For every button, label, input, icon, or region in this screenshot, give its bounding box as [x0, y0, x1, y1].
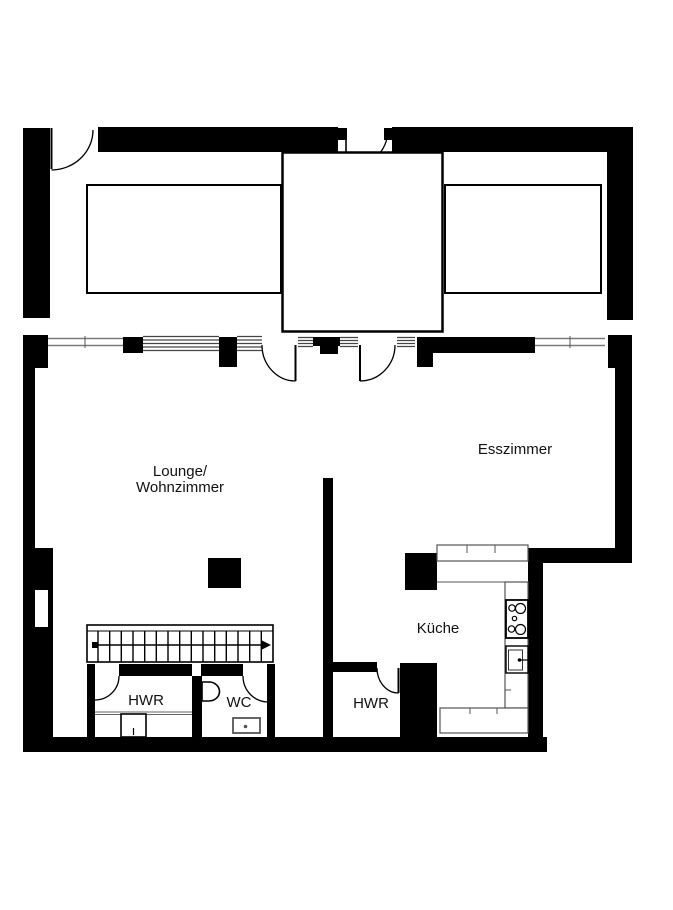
window-hatched-5 — [397, 338, 415, 347]
wall-wc-east — [267, 676, 275, 737]
window-hatched-2 — [237, 337, 262, 351]
label-utility-left: HWR — [128, 693, 164, 709]
wall-kitchen-east — [528, 563, 543, 752]
terrace-left-outline — [87, 185, 281, 293]
door-jamb-left — [338, 128, 347, 140]
washbasin-icon — [202, 682, 220, 701]
floor-plan: Lounge/ Wohnzimmer Esszimmer Küche HWR W… — [0, 0, 673, 910]
label-kitchen: Küche — [417, 621, 460, 637]
window-hatched-1 — [143, 337, 219, 351]
counter-bottom-band — [440, 708, 528, 733]
label-lounge-line2: Wohnzimmer — [136, 479, 224, 496]
door-lounge-left — [262, 345, 296, 381]
door-lounge-right — [360, 345, 395, 381]
label-wc: WC — [227, 695, 252, 711]
cistern-knob — [244, 725, 248, 729]
cistern-icon — [233, 718, 260, 733]
wall-under-stairs-b — [119, 664, 192, 676]
counter-top-band — [437, 545, 528, 561]
stairs — [87, 625, 273, 662]
door-hwr-left-arc — [95, 676, 119, 700]
door-upper-left — [52, 128, 94, 170]
upper-section — [23, 127, 633, 332]
wall-kitchen-top — [528, 548, 632, 563]
wall-under-stairs-d — [267, 664, 275, 676]
window-hatched-3 — [298, 338, 313, 347]
pillar-corner-ne — [608, 335, 632, 368]
column-lounge — [208, 558, 241, 588]
sink-tap-dot — [518, 658, 522, 662]
wall-hwr-west — [87, 676, 95, 737]
wall-south — [23, 737, 547, 752]
door-swing-arc — [262, 345, 296, 381]
label-utility-right: HWR — [353, 696, 389, 712]
wall-west-niche — [35, 590, 48, 627]
wall-kitchen-pillar — [405, 553, 437, 590]
wall-pillar-stepped-b — [320, 346, 338, 354]
label-lounge: Lounge/ Wohnzimmer — [136, 464, 224, 496]
stove-icon — [506, 600, 528, 638]
wall-pillar — [123, 337, 143, 353]
label-dining: Esszimmer — [478, 442, 552, 458]
wall-pillar-tall-2 — [417, 337, 433, 367]
wall-hwr-wc-divider — [192, 676, 202, 737]
floor-plan-drawing — [0, 0, 673, 910]
wall-upper-top-right — [392, 127, 633, 152]
wall-pillar-tall — [219, 337, 237, 367]
upper-center-room-outline — [283, 153, 443, 332]
door-swing-arc — [360, 345, 395, 381]
label-lounge-line1: Lounge/ — [153, 463, 207, 480]
washing-machine-icon — [121, 714, 146, 737]
wall-block-hwr2-east — [400, 663, 437, 738]
wall-divider-central — [323, 478, 333, 737]
window-hatched-4 — [340, 338, 358, 347]
north-facade — [48, 336, 605, 381]
wall-upper-top-left — [98, 127, 338, 152]
door-hwr2-arc — [377, 668, 399, 693]
terrace-right-outline — [445, 185, 601, 293]
wall-upper-right — [607, 152, 633, 320]
wall-upper-left — [23, 128, 50, 318]
wall-under-stairs-c — [201, 664, 243, 676]
wall-hwr2-top — [333, 662, 377, 672]
wall-under-stairs-a — [87, 664, 95, 676]
door-swing-arc — [52, 130, 94, 170]
stairs-arrow-start — [92, 642, 98, 648]
wall-pillar-stepped-a — [313, 337, 340, 346]
wall-segment-north — [433, 337, 535, 353]
kitchen-sink-icon — [506, 646, 528, 673]
